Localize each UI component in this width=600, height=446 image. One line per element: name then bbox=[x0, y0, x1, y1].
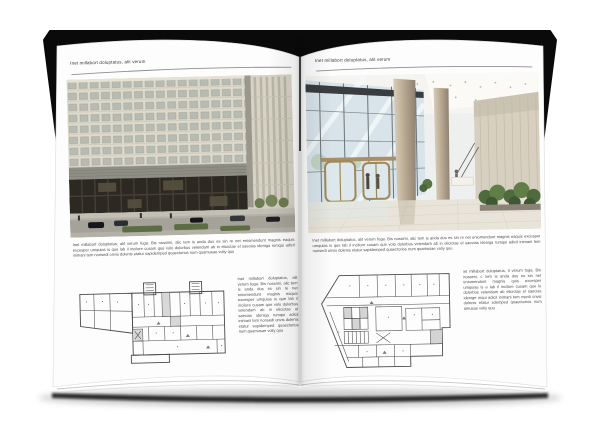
plan-outline bbox=[321, 274, 451, 368]
main-building-facade bbox=[67, 75, 247, 179]
left-page-content: Inet millabort doluptatus, alit verum bbox=[58, 47, 304, 393]
building-exterior-photo bbox=[67, 74, 296, 237]
reception-desk bbox=[451, 177, 473, 185]
page-header: Inet millabort doluptatus, alit verum bbox=[315, 56, 415, 63]
lobby-interior-illustration bbox=[305, 72, 541, 233]
column-reflection bbox=[398, 200, 416, 224]
plan-walls bbox=[326, 274, 451, 368]
lobby-interior-photo bbox=[305, 72, 541, 233]
page-header: Inet millabort doluptatus, alit verum bbox=[70, 58, 170, 65]
column-text: Inet millabort doluptatus, alit verum fu… bbox=[237, 275, 298, 334]
plan-outline bbox=[80, 281, 226, 364]
book-mockup-scene: Inet millabort doluptatus, alit verum bbox=[0, 0, 600, 446]
stone-wall bbox=[474, 92, 541, 205]
neighbor-building bbox=[244, 74, 294, 207]
building-exterior-illustration bbox=[67, 74, 296, 237]
column-text: iet millabort doluptatus, it verum fuga.… bbox=[463, 268, 542, 312]
lobby-floor bbox=[308, 198, 542, 233]
body-text: Inet millabort doluptatus, alit verum fu… bbox=[73, 237, 295, 258]
plan-cores bbox=[344, 306, 443, 346]
body-text: Inet millabort doluptatus, alit verum fu… bbox=[312, 234, 540, 254]
right-page-content: Inet millabort doluptatus, alit verum bbox=[301, 46, 549, 391]
floor-plan bbox=[313, 269, 459, 374]
dark-storefront bbox=[69, 175, 248, 213]
glass-reflection bbox=[308, 201, 388, 223]
floor-plan bbox=[71, 275, 231, 371]
